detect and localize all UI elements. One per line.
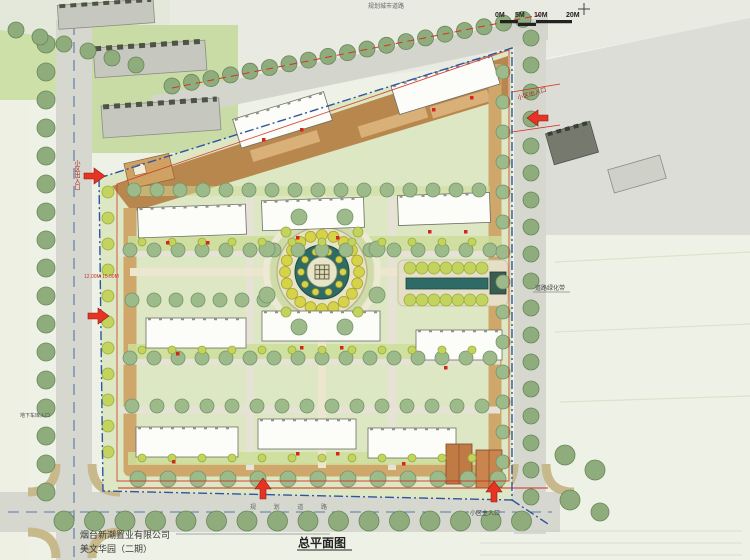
plan-title: 总平面图 [298, 535, 346, 550]
entrance-label-west: 小区出入口 [73, 159, 80, 191]
scale-20: 20M [566, 12, 580, 19]
garage-label: 地下车库入口 [20, 412, 50, 419]
entrance-label-main: 小区主入口 [470, 509, 500, 517]
building [262, 311, 380, 341]
building [146, 318, 246, 348]
scale-10: 10M [534, 12, 548, 19]
road-label-top: 规划城市道路 [368, 2, 404, 10]
plaza-center-pattern [315, 265, 329, 279]
project-name: 美文华园（二期） [80, 543, 152, 554]
water-channel [406, 278, 488, 289]
building [136, 427, 238, 457]
greenbelt-label: 道路绿化带 [535, 284, 565, 292]
master-plan-canvas: 规划城市道路 规 划 道 路 道路绿化带 小区出入口 小区出入口 小区主入口 1… [0, 0, 750, 560]
scale-5: 5M [515, 12, 525, 19]
building [258, 419, 356, 449]
building [138, 204, 247, 238]
company-name: 烟台新潮置业有限公司 [80, 529, 170, 540]
building [398, 192, 491, 225]
road-label-bottom: 规 划 道 路 [250, 503, 335, 511]
scale-0: 0M [495, 12, 505, 19]
dimension-label: 12.00M 15.00M [84, 274, 119, 280]
building [368, 428, 456, 458]
